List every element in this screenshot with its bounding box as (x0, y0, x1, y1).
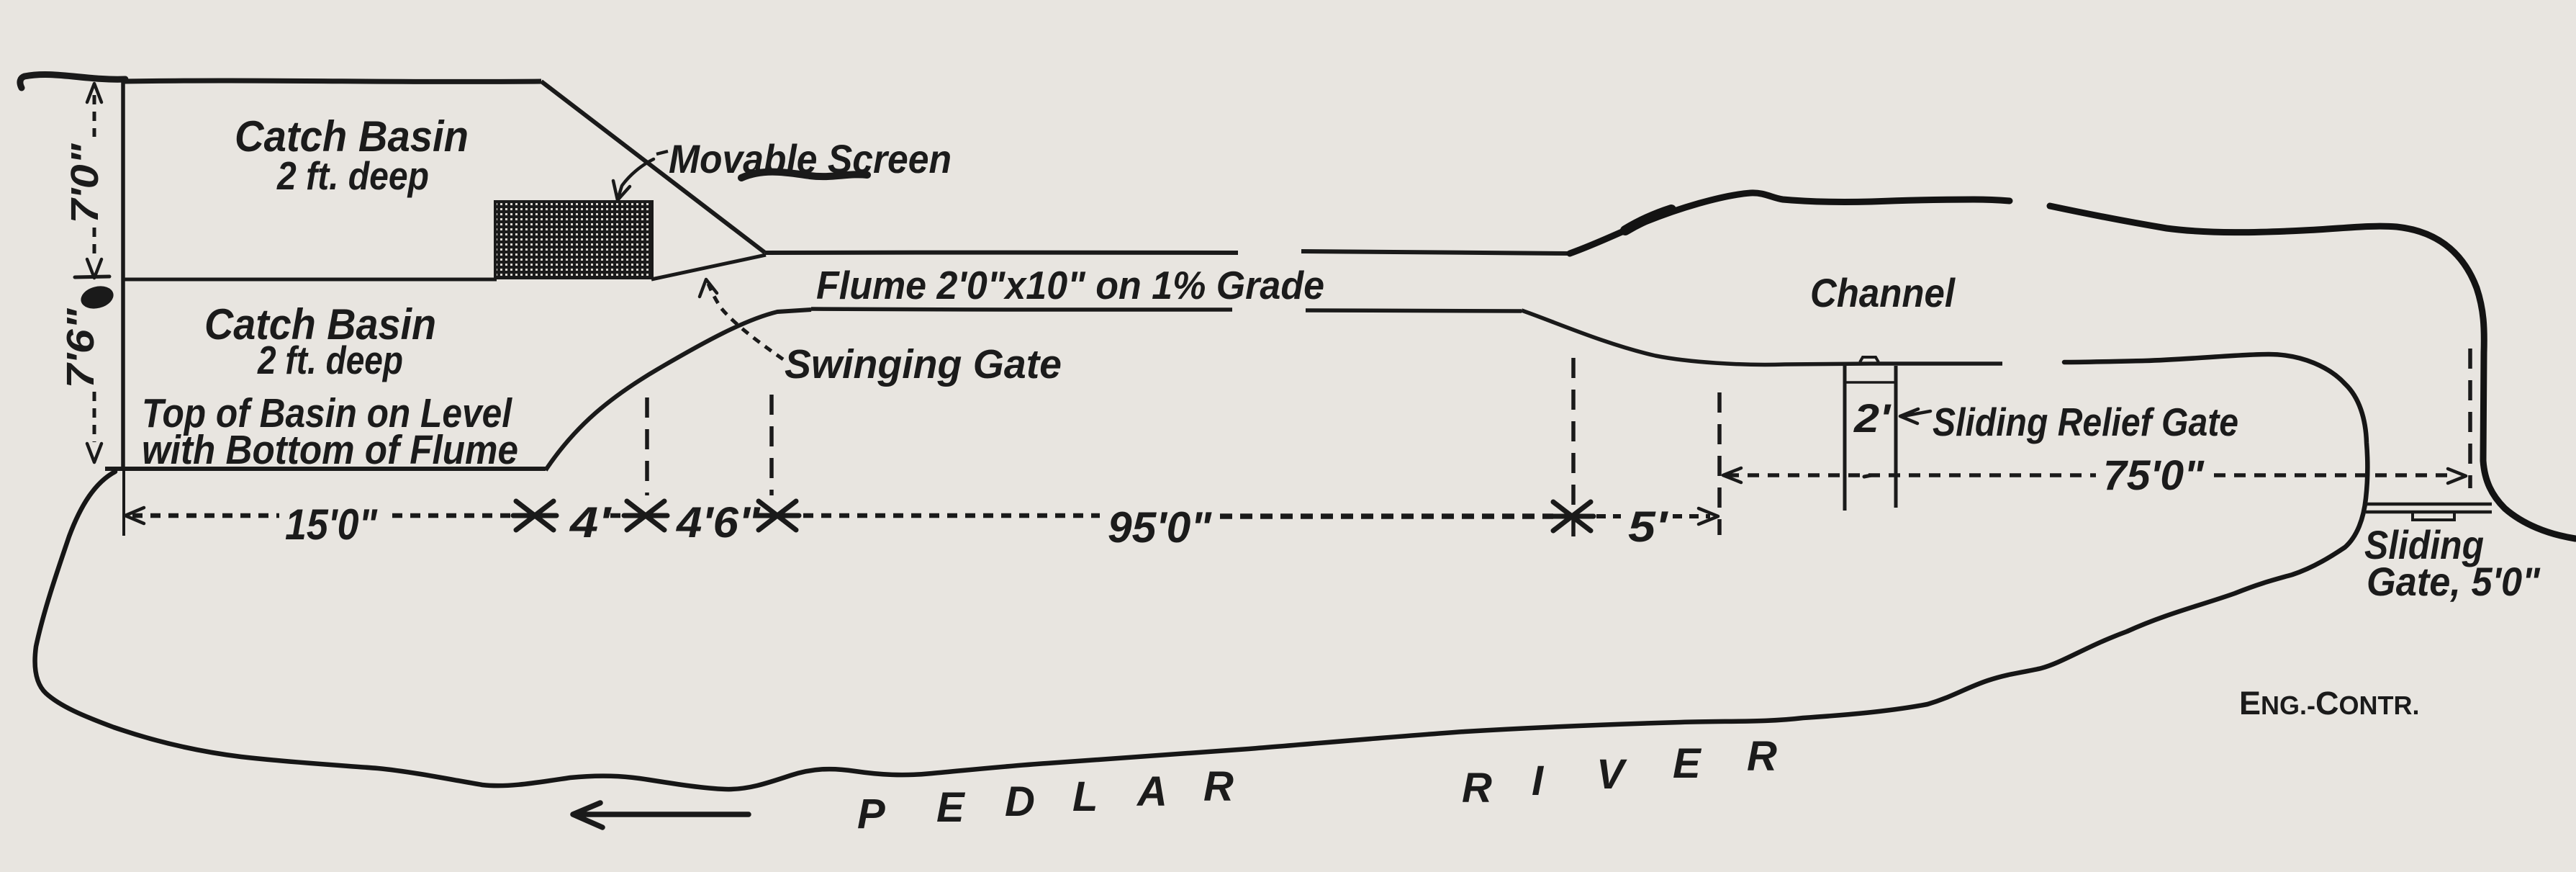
svg-text:2 ft. deep: 2 ft. deep (276, 153, 429, 198)
svg-text:I: I (1532, 758, 1545, 804)
svg-text:R: R (1462, 765, 1492, 812)
svg-text:V: V (1596, 751, 1627, 798)
svg-text:Sliding Relief Gate: Sliding Relief Gate (1933, 400, 2238, 444)
svg-text:4': 4' (569, 498, 612, 547)
svg-text:95'0": 95'0" (1108, 503, 1213, 552)
svg-text:A: A (1136, 768, 1167, 815)
svg-text:E: E (1673, 740, 1702, 787)
svg-text:P: P (857, 791, 885, 837)
svg-text:75'0": 75'0" (2103, 452, 2205, 499)
svg-text:Flume 2'0"x10" on 1% Grade: Flume 2'0"x10" on 1% Grade (816, 263, 1324, 307)
svg-text:Gate, 5'0": Gate, 5'0" (2367, 559, 2541, 604)
svg-text:Channel: Channel (1810, 270, 1956, 315)
svg-text:L: L (1072, 773, 1098, 820)
svg-text:2 ft. deep: 2 ft. deep (257, 338, 403, 382)
svg-text:R: R (1203, 763, 1234, 810)
svg-text:ENG.-CONTR.: ENG.-CONTR. (2239, 685, 2420, 722)
svg-text:R: R (1747, 733, 1777, 780)
svg-text:with Bottom of Flume: with Bottom of Flume (142, 427, 518, 473)
svg-text:15'0": 15'0" (285, 500, 378, 549)
svg-text:7'6": 7'6" (59, 307, 102, 389)
svg-text:5': 5' (1628, 503, 1668, 551)
svg-text:Swinging Gate: Swinging Gate (785, 341, 1062, 387)
svg-text:E: E (936, 784, 966, 831)
svg-text:7'0": 7'0" (63, 143, 107, 224)
svg-text:4'6": 4'6" (676, 498, 761, 547)
svg-text:2': 2' (1853, 395, 1892, 441)
svg-text:D: D (1005, 778, 1035, 825)
